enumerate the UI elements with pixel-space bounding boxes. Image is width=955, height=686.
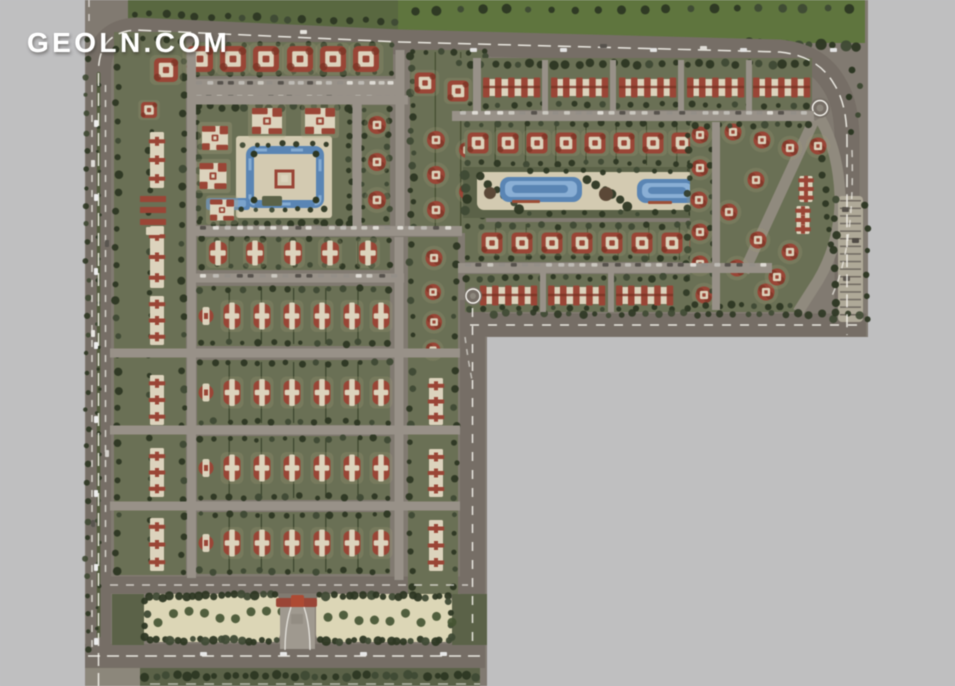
svg-text:GEOLN.COM: GEOLN.COM (27, 27, 230, 58)
